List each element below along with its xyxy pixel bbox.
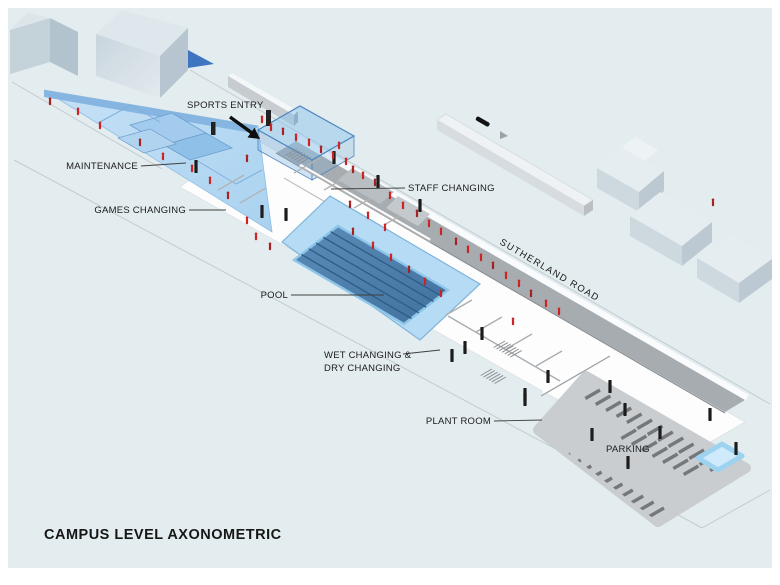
site-illustration	[0, 0, 780, 585]
label-staff-changing: STAFF CHANGING	[408, 183, 495, 194]
label-games-changing: GAMES CHANGING	[92, 205, 186, 216]
label-plant-room: PLANT ROOM	[416, 416, 491, 427]
label-pool: POOL	[238, 290, 288, 301]
label-sports-entry: SPORTS ENTRY	[187, 100, 264, 111]
label-parking: PARKING	[606, 444, 650, 455]
label-wet-dry-changing: WET CHANGING & DRY CHANGING	[324, 349, 434, 375]
chimney	[211, 122, 216, 135]
page-title: CAMPUS LEVEL AXONOMETRIC	[44, 527, 282, 543]
entry-door	[266, 110, 271, 126]
axonometric-page: SPORTS ENTRY MAINTENANCE GAMES CHANGING …	[0, 0, 780, 585]
axonometric-canvas: SPORTS ENTRY MAINTENANCE GAMES CHANGING …	[0, 0, 780, 585]
label-maintenance: MAINTENANCE	[58, 161, 138, 172]
